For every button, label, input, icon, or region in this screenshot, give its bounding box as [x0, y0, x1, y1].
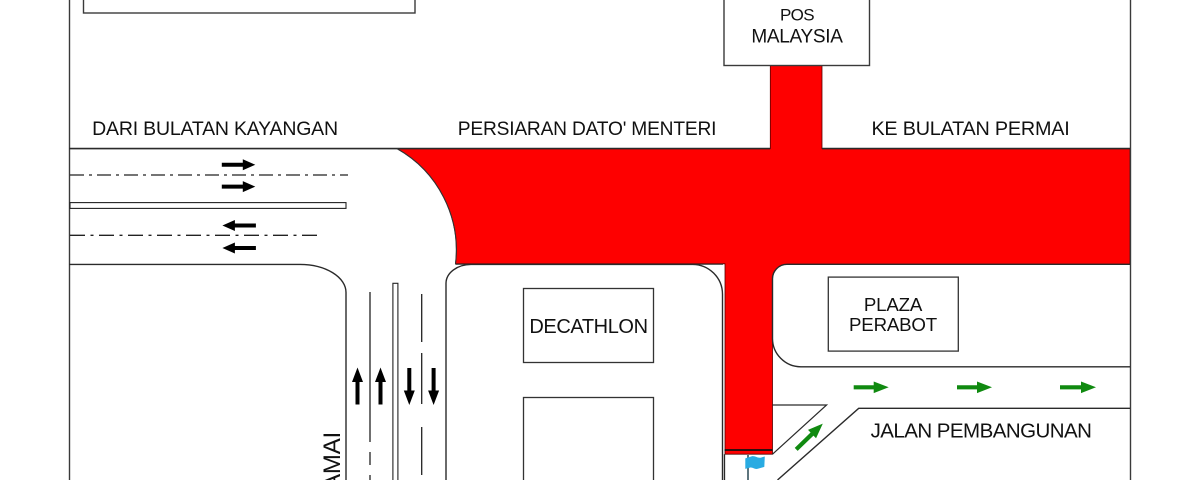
svg-text:POS: POS [780, 6, 814, 25]
svg-text:JALAN DAMAI: JALAN DAMAI [319, 432, 346, 480]
svg-text:JALAN PEMBANGUNAN: JALAN PEMBANGUNAN [871, 420, 1092, 443]
svg-text:DARI BULATAN KAYANGAN: DARI BULATAN KAYANGAN [92, 118, 338, 140]
svg-text:DECATHLON: DECATHLON [529, 316, 647, 338]
svg-text:PERABOT: PERABOT [849, 314, 937, 335]
svg-text:KE BULATAN PERMAI: KE BULATAN PERMAI [871, 118, 1069, 140]
svg-text:PERSIARAN DATO' MENTERI: PERSIARAN DATO' MENTERI [458, 119, 717, 140]
svg-text:PLAZA: PLAZA [864, 294, 923, 315]
svg-text:MALAYSIA: MALAYSIA [751, 27, 843, 48]
